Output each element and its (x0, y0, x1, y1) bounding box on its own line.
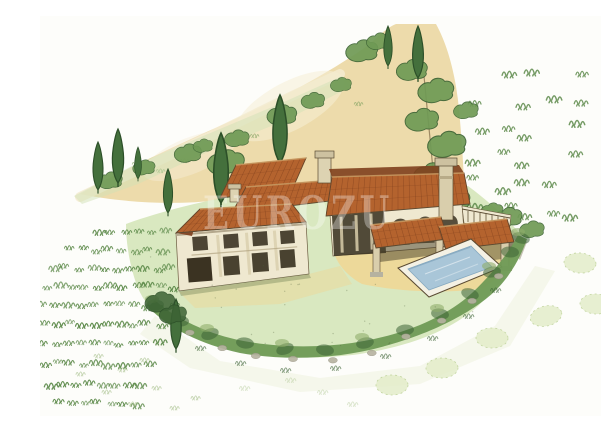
stipple-dot (340, 345, 341, 346)
stone (289, 356, 298, 362)
french-window (252, 252, 269, 272)
stone (328, 357, 337, 363)
stone (218, 345, 227, 351)
stipple-dot (284, 304, 285, 305)
stipple-dot (375, 284, 376, 285)
hedge-highlight (355, 333, 369, 341)
stone (437, 318, 446, 324)
stipple-dot (331, 342, 332, 343)
stipple-dot (236, 288, 237, 289)
pillar-base (370, 272, 383, 277)
stipple-dot (297, 284, 298, 285)
stipple-dot (346, 290, 347, 291)
stipple-dot (363, 330, 364, 331)
stipple-dot (263, 265, 264, 266)
french-window (223, 255, 240, 275)
stipple-dot (215, 297, 216, 298)
stipple-dot (251, 334, 252, 335)
stipple-dot (155, 298, 156, 299)
stipple-dot (221, 307, 222, 308)
stipple-dot (369, 323, 370, 324)
watermark-text: EUROZU (203, 186, 393, 240)
stone (468, 298, 477, 304)
stone (185, 330, 194, 336)
hedge-highlight (200, 324, 214, 332)
olive-canopy (376, 375, 408, 395)
stipple-dot (176, 292, 177, 293)
stipple-dot (389, 342, 390, 343)
stipple-dot (150, 256, 151, 257)
stipple-dot (435, 306, 436, 307)
illustration-canvas: EUROZU (40, 16, 601, 416)
hedge-highlight (482, 262, 496, 270)
stone (367, 350, 376, 356)
stipple-dot (472, 311, 473, 312)
stipple-dot (162, 269, 163, 270)
hedge-highlight (275, 339, 289, 347)
stipple-dot (212, 285, 213, 286)
stipple-dot (265, 343, 266, 344)
stipple-dot (299, 284, 300, 285)
stipple-dot (273, 332, 274, 333)
stone (251, 353, 260, 359)
hedge-highlight (430, 304, 444, 312)
property-illustration: EUROZU (40, 16, 601, 416)
stone (494, 273, 503, 279)
main-chimney (315, 151, 334, 183)
stipple-dot (332, 333, 333, 334)
stipple-dot (290, 284, 291, 285)
stipple-dot (364, 321, 365, 322)
french-window (279, 249, 295, 268)
garage-door (187, 257, 213, 283)
stone (401, 334, 410, 340)
stipple-dot (284, 291, 285, 292)
stipple-dot (404, 305, 405, 306)
pillar (373, 244, 380, 274)
hedge-highlight (511, 228, 525, 236)
